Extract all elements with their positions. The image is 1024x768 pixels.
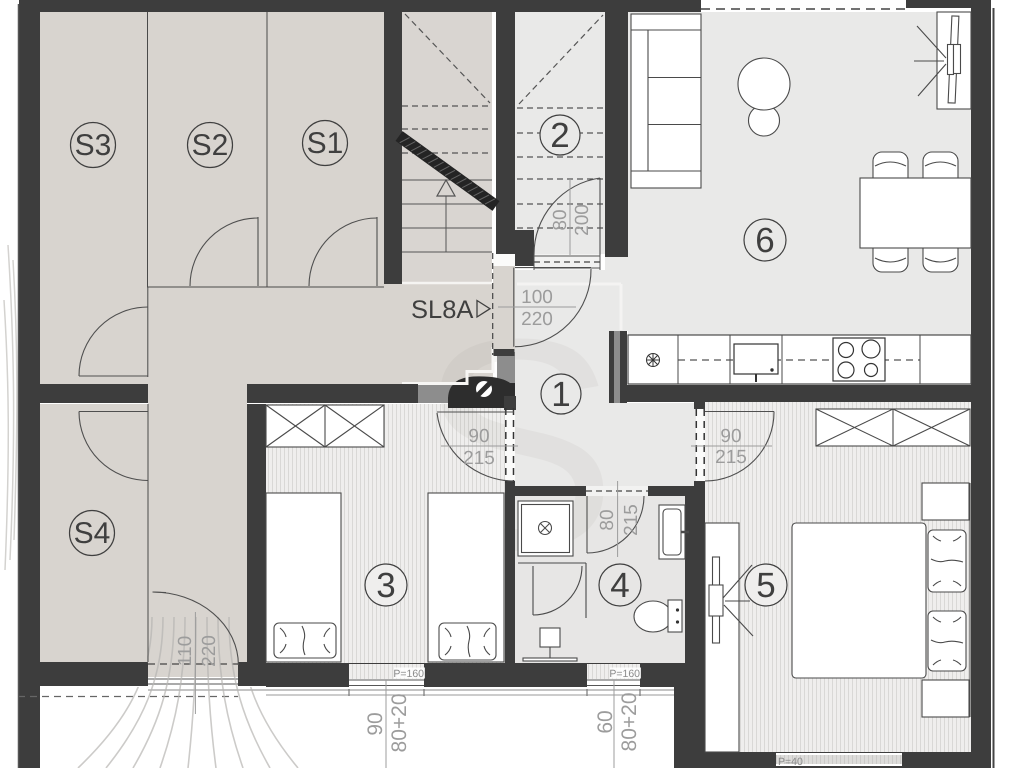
svg-text:6: 6 (755, 221, 774, 260)
svg-text:80: 80 (597, 509, 618, 530)
svg-text:2: 2 (550, 116, 569, 155)
svg-text:220: 220 (521, 309, 553, 330)
svg-text:S4: S4 (74, 517, 111, 550)
svg-text:220: 220 (199, 635, 220, 667)
svg-text:215: 215 (715, 447, 747, 468)
svg-text:100: 100 (521, 287, 553, 308)
svg-text:90: 90 (468, 426, 489, 447)
svg-text:5: 5 (756, 566, 775, 605)
svg-text:P=160: P=160 (609, 668, 640, 680)
svg-text:S3: S3 (75, 129, 112, 162)
svg-text:80+20: 80+20 (388, 694, 411, 753)
svg-text:60: 60 (594, 710, 617, 733)
svg-text:110: 110 (175, 636, 196, 666)
svg-text:215: 215 (621, 504, 642, 536)
svg-text:3: 3 (376, 566, 395, 605)
svg-text:90: 90 (364, 712, 387, 735)
svg-text:215: 215 (463, 448, 495, 469)
svg-text:P=160: P=160 (393, 668, 424, 680)
svg-text:80+20: 80+20 (618, 693, 641, 752)
svg-text:200: 200 (572, 204, 593, 236)
svg-text:80: 80 (550, 209, 571, 230)
svg-text:90: 90 (720, 426, 741, 447)
svg-text:1: 1 (551, 375, 570, 414)
svg-text:4: 4 (610, 566, 629, 605)
svg-text:P=40: P=40 (778, 756, 803, 768)
svg-text:SL8A: SL8A (411, 296, 473, 324)
svg-text:S2: S2 (192, 129, 229, 162)
svg-text:S1: S1 (307, 127, 344, 160)
